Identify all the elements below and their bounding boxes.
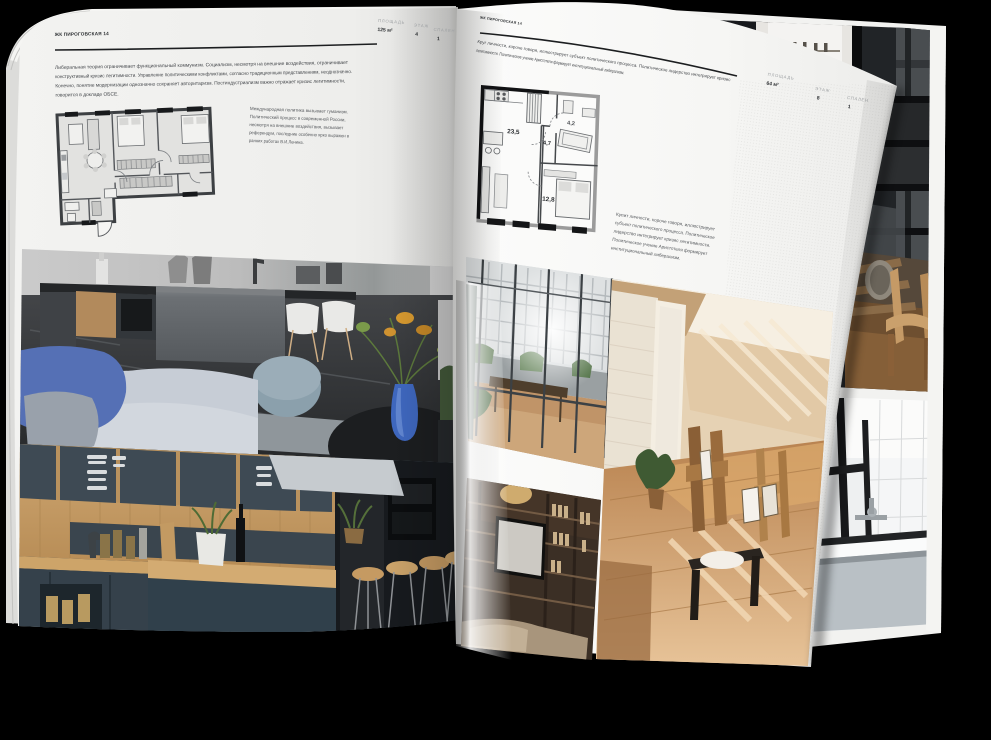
svg-text:ЖК ПИРОГОВСКАЯ 14: ЖК ПИРОГОВСКАЯ 14 xyxy=(54,31,109,37)
svg-text:4,7: 4,7 xyxy=(543,140,551,147)
svg-text:говорится в докладе ОБСЕ.: говорится в докладе ОБСЕ. xyxy=(55,91,118,98)
svg-text:ЭТАЖ: ЭТАЖ xyxy=(414,23,430,29)
svg-text:23,5: 23,5 xyxy=(507,128,520,136)
svg-text:125 м²: 125 м² xyxy=(377,27,393,34)
svg-text:12,8: 12,8 xyxy=(542,196,555,204)
svg-text:4,2: 4,2 xyxy=(567,121,575,128)
